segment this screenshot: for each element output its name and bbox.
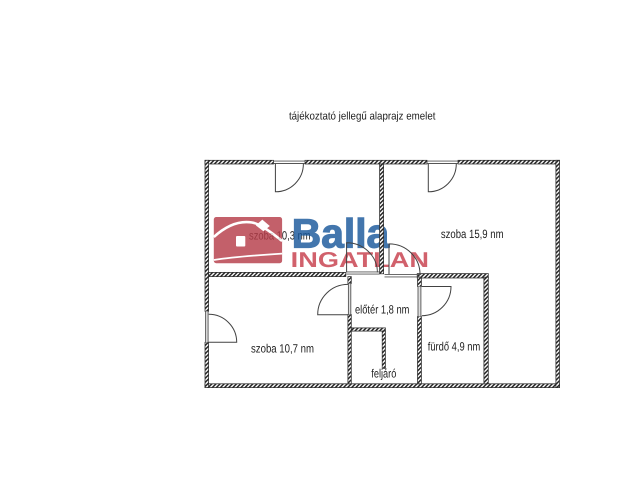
svg-text:feljáró: feljáró	[371, 367, 396, 381]
svg-text:tájékoztató jellegű alaprajz e: tájékoztató jellegű alaprajz emelet	[289, 111, 436, 123]
svg-text:szoba 10,7 nm: szoba 10,7 nm	[251, 341, 314, 355]
svg-text:szoba 15,9 nm: szoba 15,9 nm	[441, 227, 504, 241]
svg-text:előtér 1,8 nm: előtér 1,8 nm	[355, 303, 409, 317]
svg-text:fürdő 4,9 nm: fürdő 4,9 nm	[428, 340, 481, 354]
svg-text:INGATLAN: INGATLAN	[291, 248, 429, 272]
